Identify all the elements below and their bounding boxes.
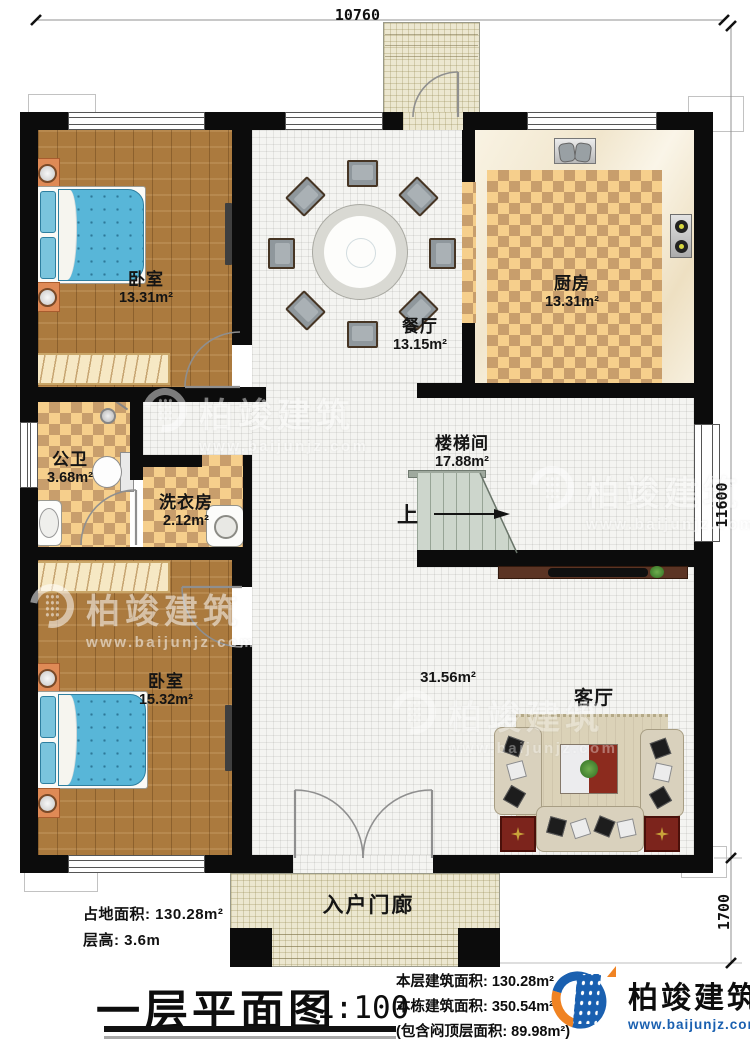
room-name: 公卫 (36, 450, 104, 470)
bed-pillow (40, 742, 56, 784)
room-name: 楼梯间 (416, 434, 508, 454)
dining-chair (347, 160, 378, 187)
entry-porch-steps (272, 934, 458, 964)
bed-pillow (40, 191, 56, 233)
room-name: 厨房 (524, 274, 620, 294)
porch-pillar-right (458, 928, 500, 967)
wall-bedroom-bottom-right (232, 645, 252, 855)
room-name: 客厅 (558, 688, 630, 710)
wall-stairhall-bottom (417, 550, 695, 567)
sofa-cushion (616, 818, 636, 838)
room-label-bedroom-top: 卧室 13.31m² (98, 270, 194, 307)
brand-logo-icon (550, 966, 620, 1038)
television (548, 568, 648, 577)
stove-burner (675, 220, 688, 233)
wall-laundry-top (138, 455, 202, 467)
wall-tv (225, 203, 232, 265)
side-table (644, 816, 680, 852)
room-label-dining: 餐厅 13.15m² (372, 317, 468, 354)
title-underline-secondary (104, 1036, 396, 1039)
side-table (500, 816, 536, 852)
footprint-note: 占地面积: 130.28m² (83, 903, 223, 924)
wardrobe (32, 353, 170, 385)
window-kitchen (527, 112, 657, 130)
wall-laundry-right (243, 455, 252, 547)
wardrobe (32, 561, 170, 593)
kitchen-stove (670, 214, 692, 258)
room-name: 餐厅 (372, 317, 468, 337)
eave-corner-bottom-left (24, 870, 98, 892)
table-plant (580, 760, 598, 778)
brand-block: 柏竣建筑 www.baijunjz.com (550, 966, 750, 1038)
wall-stairhall-top (417, 383, 695, 398)
building-area-line: 本栋建筑面积: 350.54m² (396, 995, 554, 1016)
porch-pillar-left (230, 928, 272, 967)
room-area: 13.31m² (98, 290, 194, 307)
wall-bedroom-top-right (232, 130, 252, 345)
wall-tv (225, 705, 232, 771)
kitchen-doorway-floor (462, 182, 476, 323)
dining-chair (268, 238, 295, 269)
bed-pillow (40, 237, 56, 279)
floor-area-line: 本层建筑面积: 130.28m² (396, 970, 554, 991)
title-underline (104, 1026, 396, 1032)
hallway-floor (143, 398, 252, 455)
room-area: 13.31m² (524, 294, 620, 311)
brand-logo-flag (607, 966, 616, 977)
stove-burner (675, 240, 688, 253)
brand-name: 柏竣建筑 (628, 973, 750, 1017)
floor-plan-canvas: 卧室 13.31m² 餐厅 13.15m² 厨房 13.31m² 公卫 3.68… (0, 0, 750, 1046)
window-bedroom-bottom (68, 855, 205, 873)
wall-bathroom-right (130, 402, 143, 480)
brand-logo-tower (573, 974, 601, 1024)
kitchen-sink (554, 138, 596, 164)
room-area: 31.56m² (412, 669, 484, 687)
bed-mattress (58, 189, 144, 281)
room-label-bedroom-bottom: 卧室 15.32m² (118, 672, 214, 709)
wall-exterior-left (20, 112, 38, 873)
room-name: 卧室 (98, 270, 194, 290)
room-label-porch: 入户门廊 (296, 894, 441, 919)
room-name: 洗衣房 (140, 493, 232, 513)
dimension-porch-depth: 1700 (715, 882, 733, 942)
bed-pillow (40, 696, 56, 738)
room-area: 13.15m² (372, 337, 468, 354)
room-label-stairwell: 楼梯间 17.88m² (416, 434, 508, 471)
dimension-top-width: 10760 (322, 6, 380, 24)
room-area: 17.88m² (416, 454, 508, 471)
window-dining (285, 112, 383, 130)
room-label-living: 客厅 (558, 688, 630, 710)
room-area: 2.12m² (140, 513, 232, 530)
living-area-label: 31.56m² (412, 669, 484, 687)
entry-door-opening (293, 855, 433, 873)
wall-wet-zone-bottom (20, 547, 252, 560)
room-area: 15.32m² (118, 692, 214, 709)
stairs-up-label: 上 (397, 499, 418, 529)
back-door-opening (403, 112, 463, 130)
dining-table (312, 204, 408, 300)
wall-bedroom-top-bottom (20, 387, 266, 402)
back-porch-steps (385, 34, 478, 62)
window-bedroom-top (68, 112, 205, 130)
sofa-cushion (652, 762, 672, 782)
wall-bedroom-bottom-right-stub (232, 560, 252, 587)
room-name: 卧室 (118, 672, 214, 692)
shower-head (100, 408, 116, 424)
wall-dining-kitchen-upper (462, 130, 475, 182)
wash-basin (34, 500, 62, 546)
plant-icon (650, 566, 664, 578)
room-label-laundry: 洗衣房 2.12m² (140, 493, 232, 530)
room-label-bathroom: 公卫 3.68m² (36, 450, 104, 487)
room-area: 3.68m² (36, 470, 104, 487)
dining-chair (429, 238, 456, 269)
attic-area-line: (包含闷顶层面积: 89.98m²) (396, 1020, 570, 1041)
dimension-right-height: 11600 (713, 475, 731, 535)
floor-height-note: 层高: 3.6m (83, 929, 160, 950)
brand-url: www.baijunjz.com (628, 1017, 750, 1032)
room-label-kitchen: 厨房 13.31m² (524, 274, 620, 311)
